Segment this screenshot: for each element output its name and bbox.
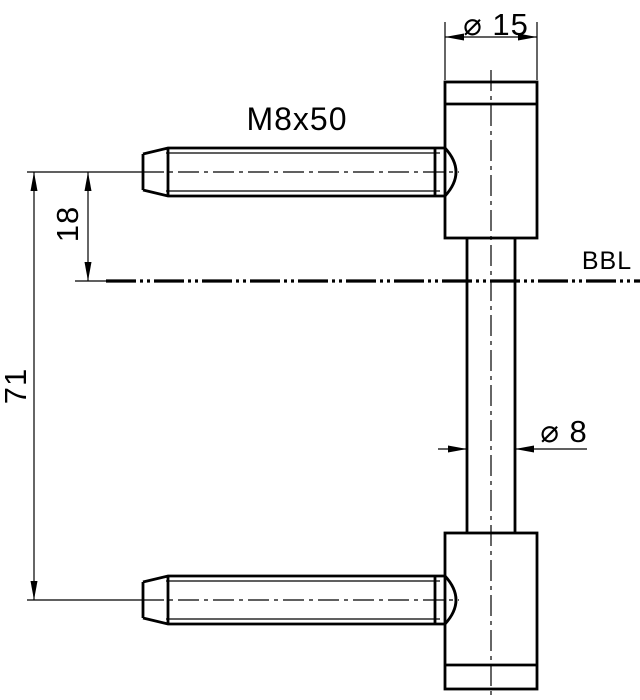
dim-arrow [445,34,464,41]
bottom-mounting-pin [143,576,459,624]
bbl-offset-label: 18 [50,206,85,242]
thread-spec-label: M8x50 [246,101,347,137]
pin-spacing-label: 71 [0,368,33,404]
dim-arrow [85,262,92,281]
dim-top-diameter: ⌀ 15 [445,7,537,80]
dim-arrow [448,446,467,453]
hinge-technical-drawing: BBL ⌀ 15 M8x50 [0,0,640,700]
dim-arrow [31,581,38,600]
left-extension-lines [27,172,143,600]
bbl-label: BBL [582,247,632,275]
dim-arrow [85,172,92,191]
top-mounting-pin [143,148,459,196]
rod-diameter-label: ⌀ 8 [540,414,588,449]
top-diameter-label: ⌀ 15 [463,7,529,42]
dim-arrow [31,172,38,191]
drawing-canvas: BBL ⌀ 15 M8x50 [0,0,640,700]
dim-arrow [515,446,534,453]
dim-rod-diameter: ⌀ 8 [438,414,588,453]
dim-pin-spacing: 71 [0,172,38,600]
dim-bbl-offset: 18 [50,172,92,281]
bbl-reference-line: BBL [75,247,640,281]
